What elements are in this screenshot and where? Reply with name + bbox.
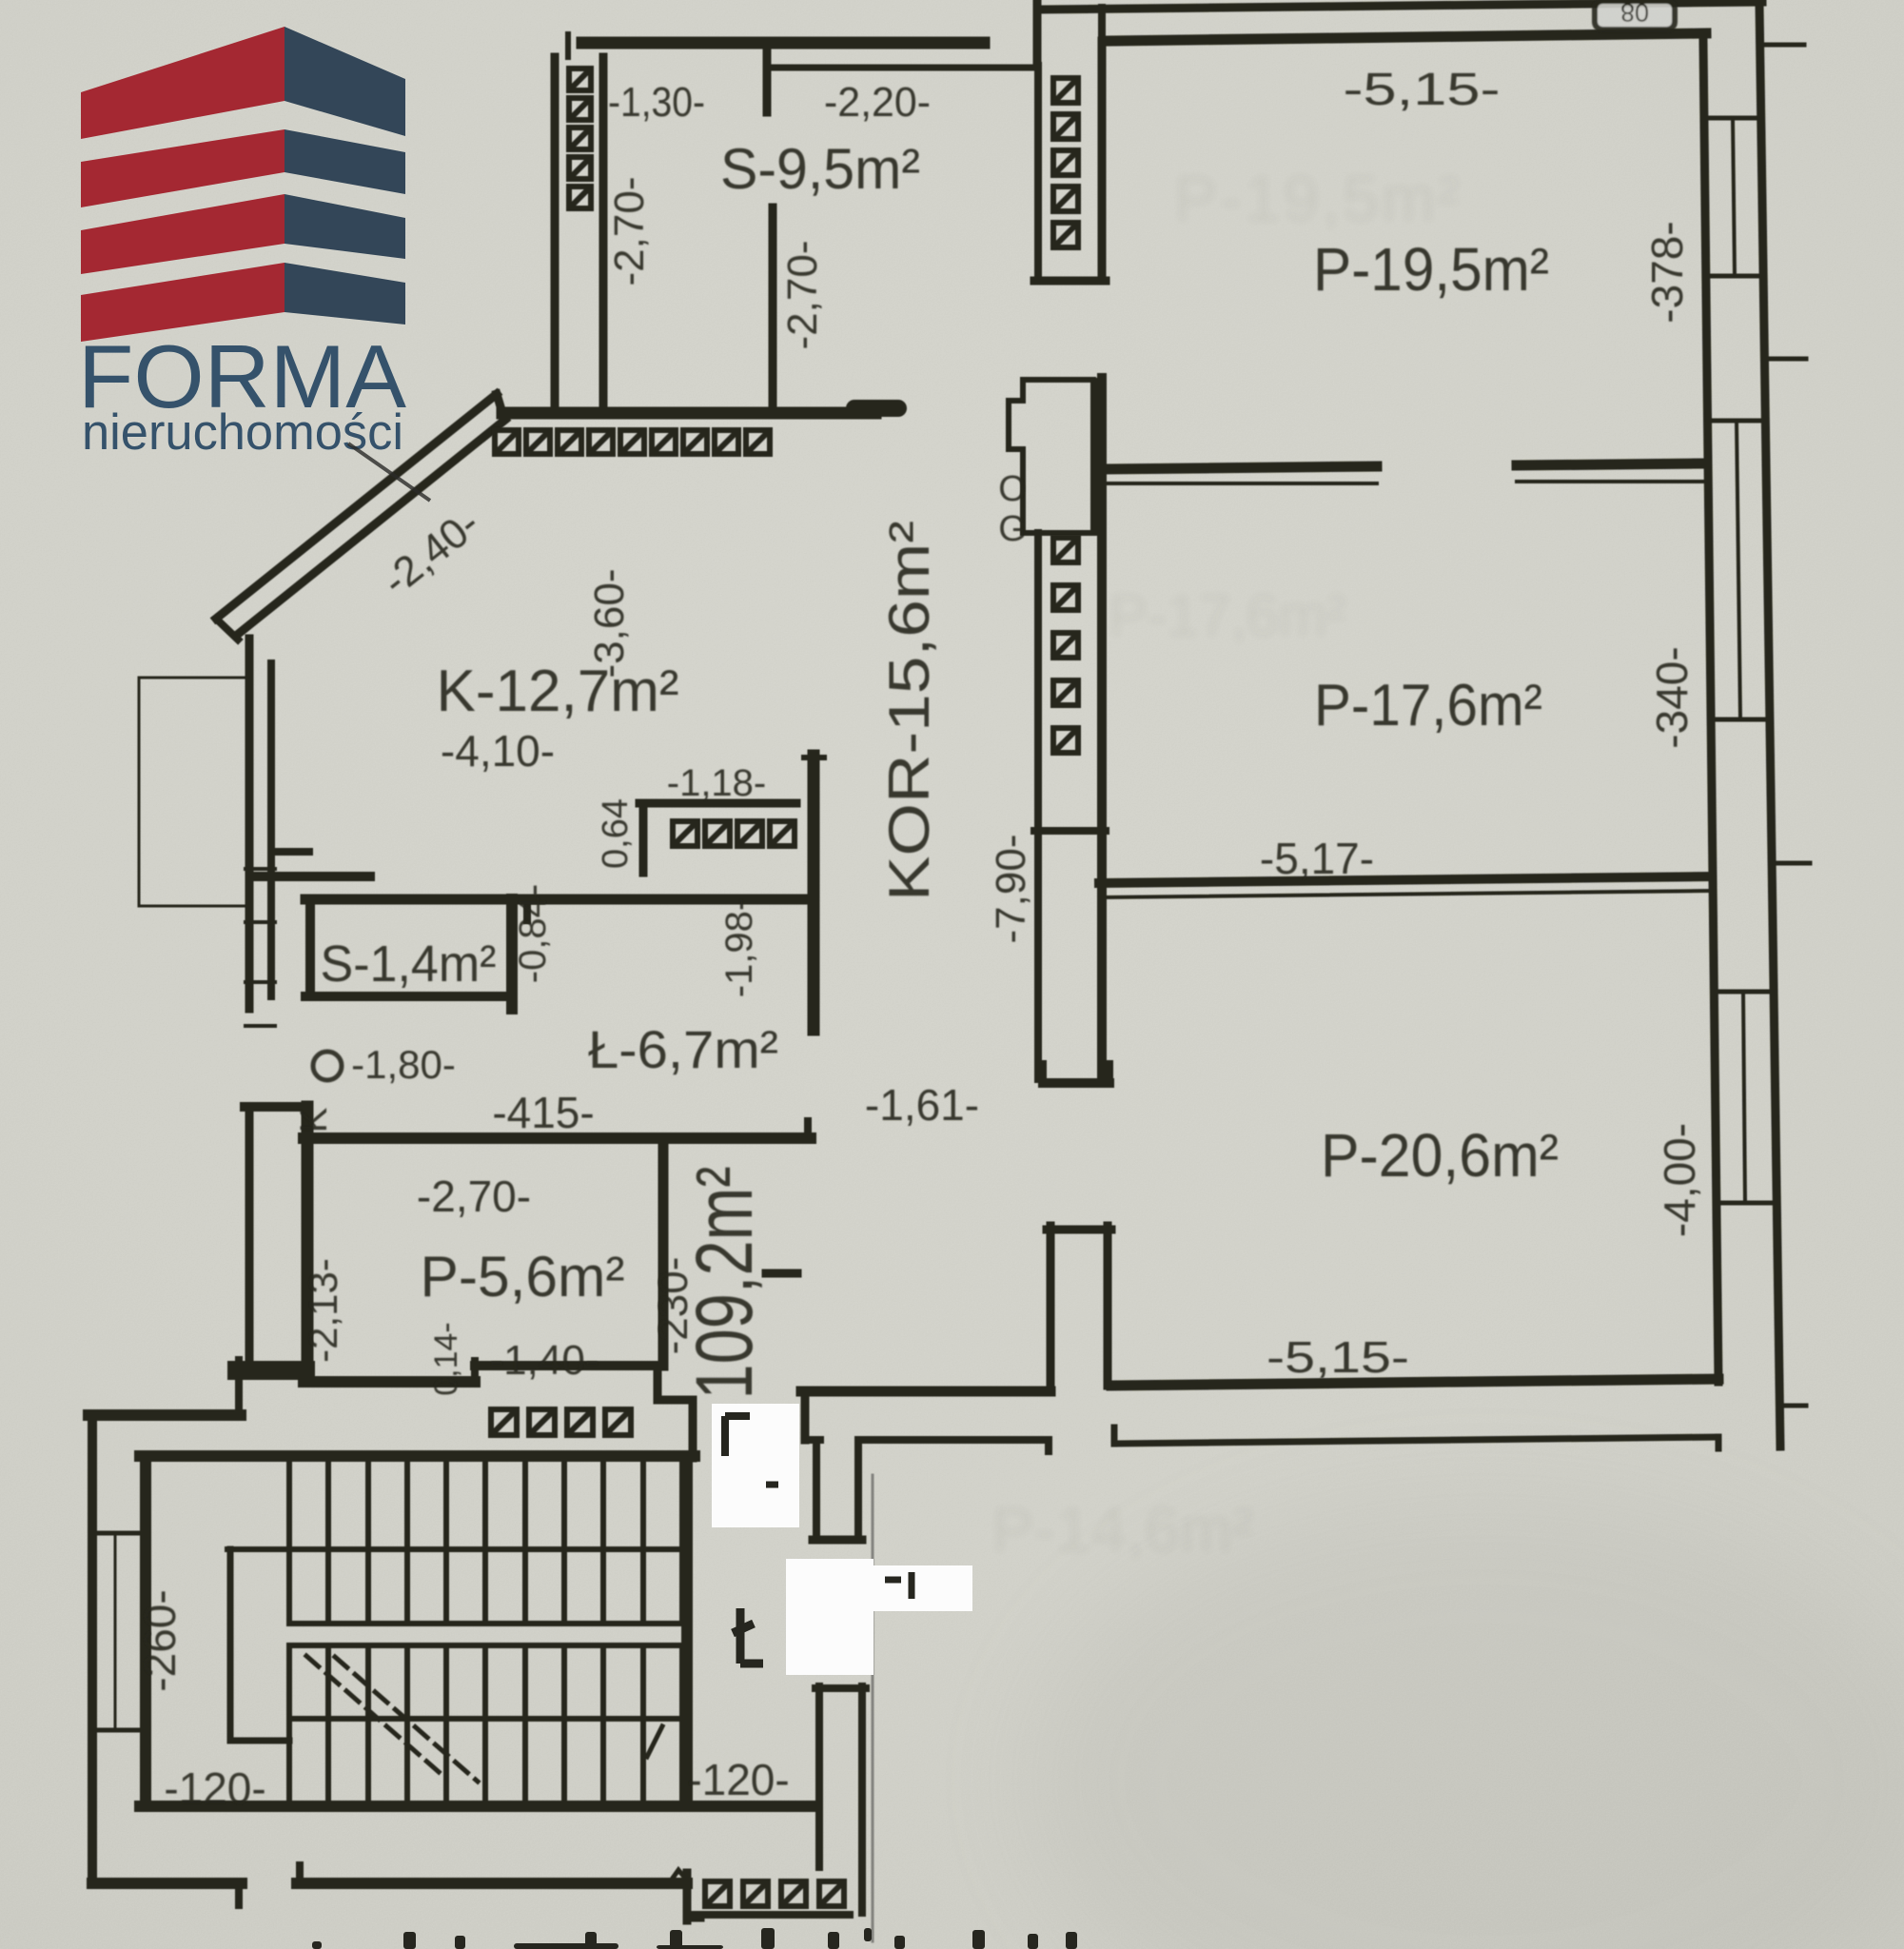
- svg-text:-2,70-: -2,70-: [779, 241, 826, 350]
- svg-text:O: O: [998, 469, 1027, 509]
- svg-text:-5,15-: -5,15-: [1266, 1332, 1409, 1382]
- svg-text:-5,15-: -5,15-: [1344, 65, 1501, 115]
- svg-text:P-20,6m²: P-20,6m²: [1321, 1121, 1559, 1190]
- svg-text:K-12,7m²: K-12,7m²: [437, 659, 679, 724]
- svg-text:P-17,6m²: P-17,6m²: [1109, 583, 1346, 649]
- svg-text:-2,20-: -2,20-: [824, 79, 931, 126]
- svg-text:-1,40-: -1,40-: [490, 1337, 599, 1384]
- svg-text:P-14,6m²: P-14,6m²: [992, 1494, 1254, 1565]
- svg-text:Ł-6,7m²: Ł-6,7m²: [588, 1019, 778, 1079]
- svg-text:08: 08: [1620, 0, 1649, 27]
- svg-text:-260-: -260-: [135, 1589, 185, 1691]
- svg-text:-2,13-: -2,13-: [301, 1258, 345, 1363]
- svg-text:S-9,5m²: S-9,5m²: [720, 137, 920, 201]
- svg-text:nieruchomości: nieruchomości: [82, 404, 403, 461]
- svg-text:P-17,6m²: P-17,6m²: [1314, 673, 1542, 738]
- svg-text:-4,10-: -4,10-: [441, 726, 555, 776]
- svg-text:K: K: [293, 1107, 335, 1132]
- svg-text:-7,90-: -7,90-: [988, 835, 1034, 944]
- svg-text:-340-: -340-: [1647, 646, 1697, 748]
- svg-text:-4,00-: -4,00-: [1655, 1123, 1704, 1237]
- svg-text:-1,61-: -1,61-: [865, 1080, 979, 1130]
- svg-text:109,2m²: 109,2m²: [679, 1167, 769, 1400]
- svg-text:-1,80-: -1,80-: [351, 1042, 456, 1087]
- svg-text:-120-: -120-: [164, 1763, 265, 1813]
- svg-text:-2,70-: -2,70-: [606, 177, 653, 286]
- svg-text:-378-: -378-: [1642, 221, 1692, 323]
- svg-text:-1,18-: -1,18-: [667, 762, 767, 804]
- svg-text:-5,17-: -5,17-: [1260, 834, 1374, 883]
- svg-text:0,64: 0,64: [596, 798, 636, 869]
- svg-text:P-19,5m²: P-19,5m²: [1313, 235, 1549, 304]
- svg-text:-1,30-: -1,30-: [608, 79, 705, 126]
- svg-text:0,14-: 0,14-: [428, 1322, 464, 1396]
- svg-text:-1,98-: -1,98-: [718, 898, 760, 998]
- svg-text:P-5,6m²: P-5,6m²: [421, 1245, 625, 1309]
- svg-text:-120-: -120-: [687, 1755, 789, 1804]
- svg-text:G: G: [998, 509, 1027, 549]
- svg-text:-2,70-: -2,70-: [417, 1171, 531, 1221]
- svg-text:KOR-15,6m²: KOR-15,6m²: [877, 521, 941, 901]
- svg-text:-415-: -415-: [492, 1088, 594, 1137]
- svg-text:-0,84-: -0,84-: [512, 884, 554, 984]
- svg-text:S-1,4m²: S-1,4m²: [321, 935, 497, 993]
- svg-text:P-19,5m²: P-19,5m²: [1174, 163, 1460, 235]
